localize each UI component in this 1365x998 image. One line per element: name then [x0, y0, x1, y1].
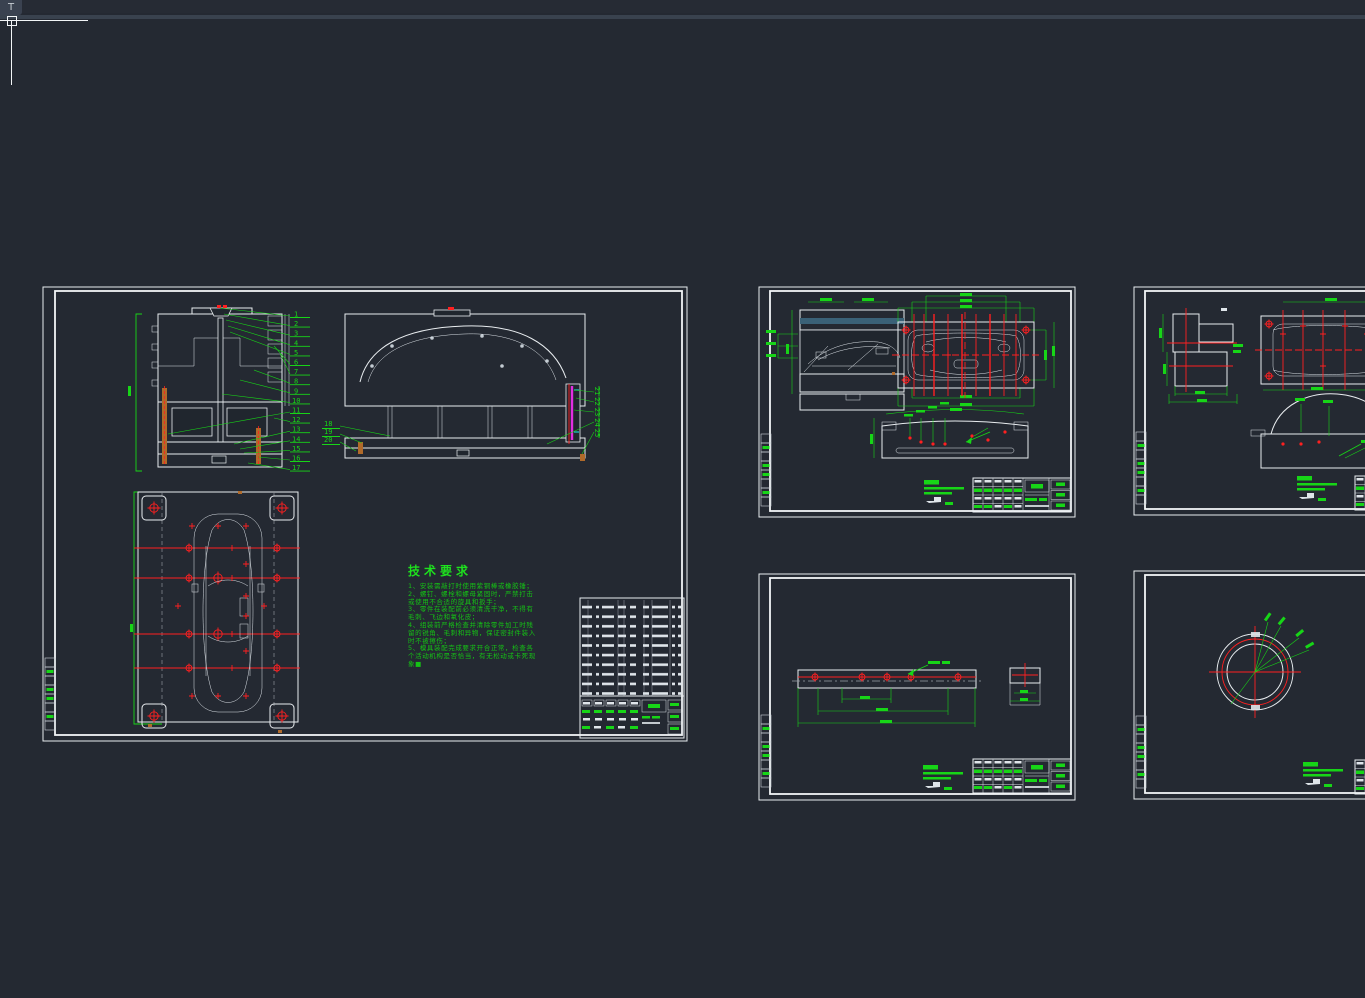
parts-list — [580, 598, 684, 738]
balloon-label: 11 — [292, 407, 300, 415]
balloon-label: 4 — [294, 339, 298, 347]
title-block — [1355, 476, 1365, 510]
balloon-label: 25 — [593, 429, 601, 437]
balloon-label: 8 — [294, 378, 298, 386]
balloon-label: 3 — [294, 330, 298, 338]
balloon-leaders-a — [168, 308, 310, 471]
plan-view-partial[interactable] — [1255, 298, 1365, 390]
tech-requirements-line: 象■ — [408, 661, 580, 669]
balloon-label: 7 — [294, 368, 298, 376]
balloon-label: 16 — [292, 455, 300, 463]
title-block — [973, 478, 1071, 512]
balloon-label: 6 — [294, 359, 298, 367]
app-icon[interactable]: T — [0, 0, 22, 15]
balloon-label: 20 — [324, 436, 332, 444]
balloon-label: 18 — [324, 420, 332, 428]
sheet-bar-detail[interactable] — [758, 573, 1076, 801]
technical-requirements: 技术要求 1、安装需敲打时使用紫铜棒或橡胶锤； 2、螺钉、螺栓和螺母紧固时，严禁… — [408, 562, 580, 669]
tech-requirements-line: 个活动机构是否恰当，有无松动或卡死现 — [408, 653, 580, 661]
balloon-label: 9 — [294, 387, 298, 395]
assembly-drawing-graphics: 1 2 3 4 5 6 7 8 9 10 11 12 13 14 15 16 1… — [42, 286, 688, 742]
plan-view[interactable] — [892, 293, 1055, 406]
titlebar — [0, 0, 1365, 13]
section-view-b[interactable] — [345, 307, 585, 461]
balloon-label: 24 — [593, 418, 601, 426]
l-section-view[interactable] — [1159, 308, 1243, 404]
balloon-label: 10 — [292, 397, 300, 405]
technical-requirements-title: 技术要求 — [408, 562, 580, 579]
drawing-notes — [1297, 476, 1337, 501]
crosshair-cursor-vertical — [11, 21, 12, 85]
plan-view[interactable] — [130, 491, 300, 733]
balloon-label: 21 — [593, 387, 601, 395]
balloon-leaders-b — [322, 386, 599, 454]
bar-side-view[interactable] — [792, 661, 982, 727]
drawing-notes — [1303, 762, 1343, 787]
balloon-label: 19 — [324, 428, 332, 436]
balloon-label: 2 — [294, 320, 298, 328]
dome-profile-view[interactable] — [1251, 394, 1365, 468]
crosshair-pickbox — [7, 16, 17, 26]
balloon-label: 17 — [292, 464, 300, 472]
balloon-label: 23 — [593, 408, 601, 416]
balloon-label: 15 — [292, 445, 300, 453]
balloon-label: 22 — [593, 397, 601, 405]
ring-view[interactable] — [1209, 612, 1314, 718]
balloon-label: 13 — [292, 426, 300, 434]
drawing-notes — [923, 765, 963, 790]
section-view-a[interactable] — [128, 305, 289, 471]
balloon-label: 1 — [294, 311, 298, 319]
sheet-assembly-drawing[interactable]: 1 2 3 4 5 6 7 8 9 10 11 12 13 14 15 16 1… — [42, 286, 688, 742]
title-block — [1355, 760, 1365, 794]
bar-end-view[interactable] — [1010, 663, 1040, 705]
drawing-notes — [924, 480, 964, 505]
sheet-ring-detail[interactable] — [1133, 570, 1365, 800]
toolbar-strip — [0, 15, 1365, 19]
iso-section-view[interactable] — [766, 298, 904, 410]
title-block — [973, 759, 1071, 793]
balloon-label: 14 — [292, 435, 300, 443]
balloon-label: 12 — [292, 416, 300, 424]
sheet-plate-detail-top[interactable] — [758, 286, 1076, 518]
sheet-insert-detail-top[interactable] — [1133, 286, 1365, 516]
balloon-label: 5 — [294, 349, 298, 357]
